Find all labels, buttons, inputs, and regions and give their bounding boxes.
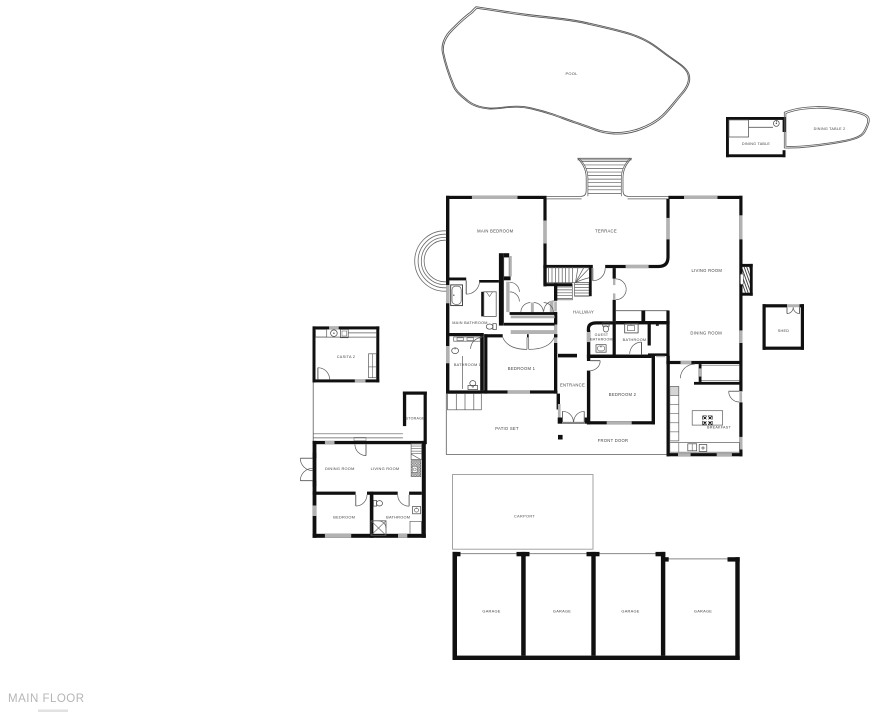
svg-text:BATHROOM 1: BATHROOM 1 xyxy=(454,363,481,367)
svg-text:ENTRANCE: ENTRANCE xyxy=(560,383,585,388)
svg-text:BREAKFAST: BREAKFAST xyxy=(707,426,731,430)
svg-text:STORAGE: STORAGE xyxy=(406,417,426,421)
svg-text:DINING TABLE: DINING TABLE xyxy=(742,142,771,146)
svg-text:GARAGE: GARAGE xyxy=(621,608,639,613)
svg-text:MAIN BEDROOM: MAIN BEDROOM xyxy=(477,229,514,234)
svg-text:HALLWAY: HALLWAY xyxy=(573,310,594,315)
svg-text:LIVING ROOM: LIVING ROOM xyxy=(691,268,722,273)
svg-text:BATHROOM: BATHROOM xyxy=(623,338,647,342)
svg-text:BEDROOM: BEDROOM xyxy=(333,514,355,519)
svg-text:GARAGE: GARAGE xyxy=(482,608,500,613)
svg-text:CASITA 2: CASITA 2 xyxy=(337,355,355,359)
svg-text:POOL: POOL xyxy=(565,71,578,76)
svg-text:TERRACE: TERRACE xyxy=(595,229,617,234)
svg-text:BATHROOM: BATHROOM xyxy=(386,514,410,519)
svg-text:PATIO SET: PATIO SET xyxy=(495,426,519,431)
svg-text:DINING TABLE 2: DINING TABLE 2 xyxy=(814,127,846,131)
svg-text:FRONT DOOR: FRONT DOOR xyxy=(598,438,629,443)
svg-text:BEDROOM 1: BEDROOM 1 xyxy=(508,366,536,371)
svg-text:GARAGE: GARAGE xyxy=(553,608,571,613)
svg-text:GARAGE: GARAGE xyxy=(694,608,712,613)
svg-text:BATHROOM: BATHROOM xyxy=(590,337,613,341)
svg-text:LIVING ROOM: LIVING ROOM xyxy=(371,466,400,471)
svg-text:GUEST: GUEST xyxy=(595,333,609,337)
svg-text:MAIN BATHROOM: MAIN BATHROOM xyxy=(452,321,487,325)
svg-text:CARPORT: CARPORT xyxy=(514,513,536,518)
svg-text:BEDROOM 2: BEDROOM 2 xyxy=(609,392,637,397)
svg-text:DINING ROOM: DINING ROOM xyxy=(690,330,722,335)
svg-text:MAIN FLOOR: MAIN FLOOR xyxy=(8,693,85,705)
svg-text:SHED: SHED xyxy=(778,329,790,333)
svg-text:DINING ROOM: DINING ROOM xyxy=(325,466,355,471)
